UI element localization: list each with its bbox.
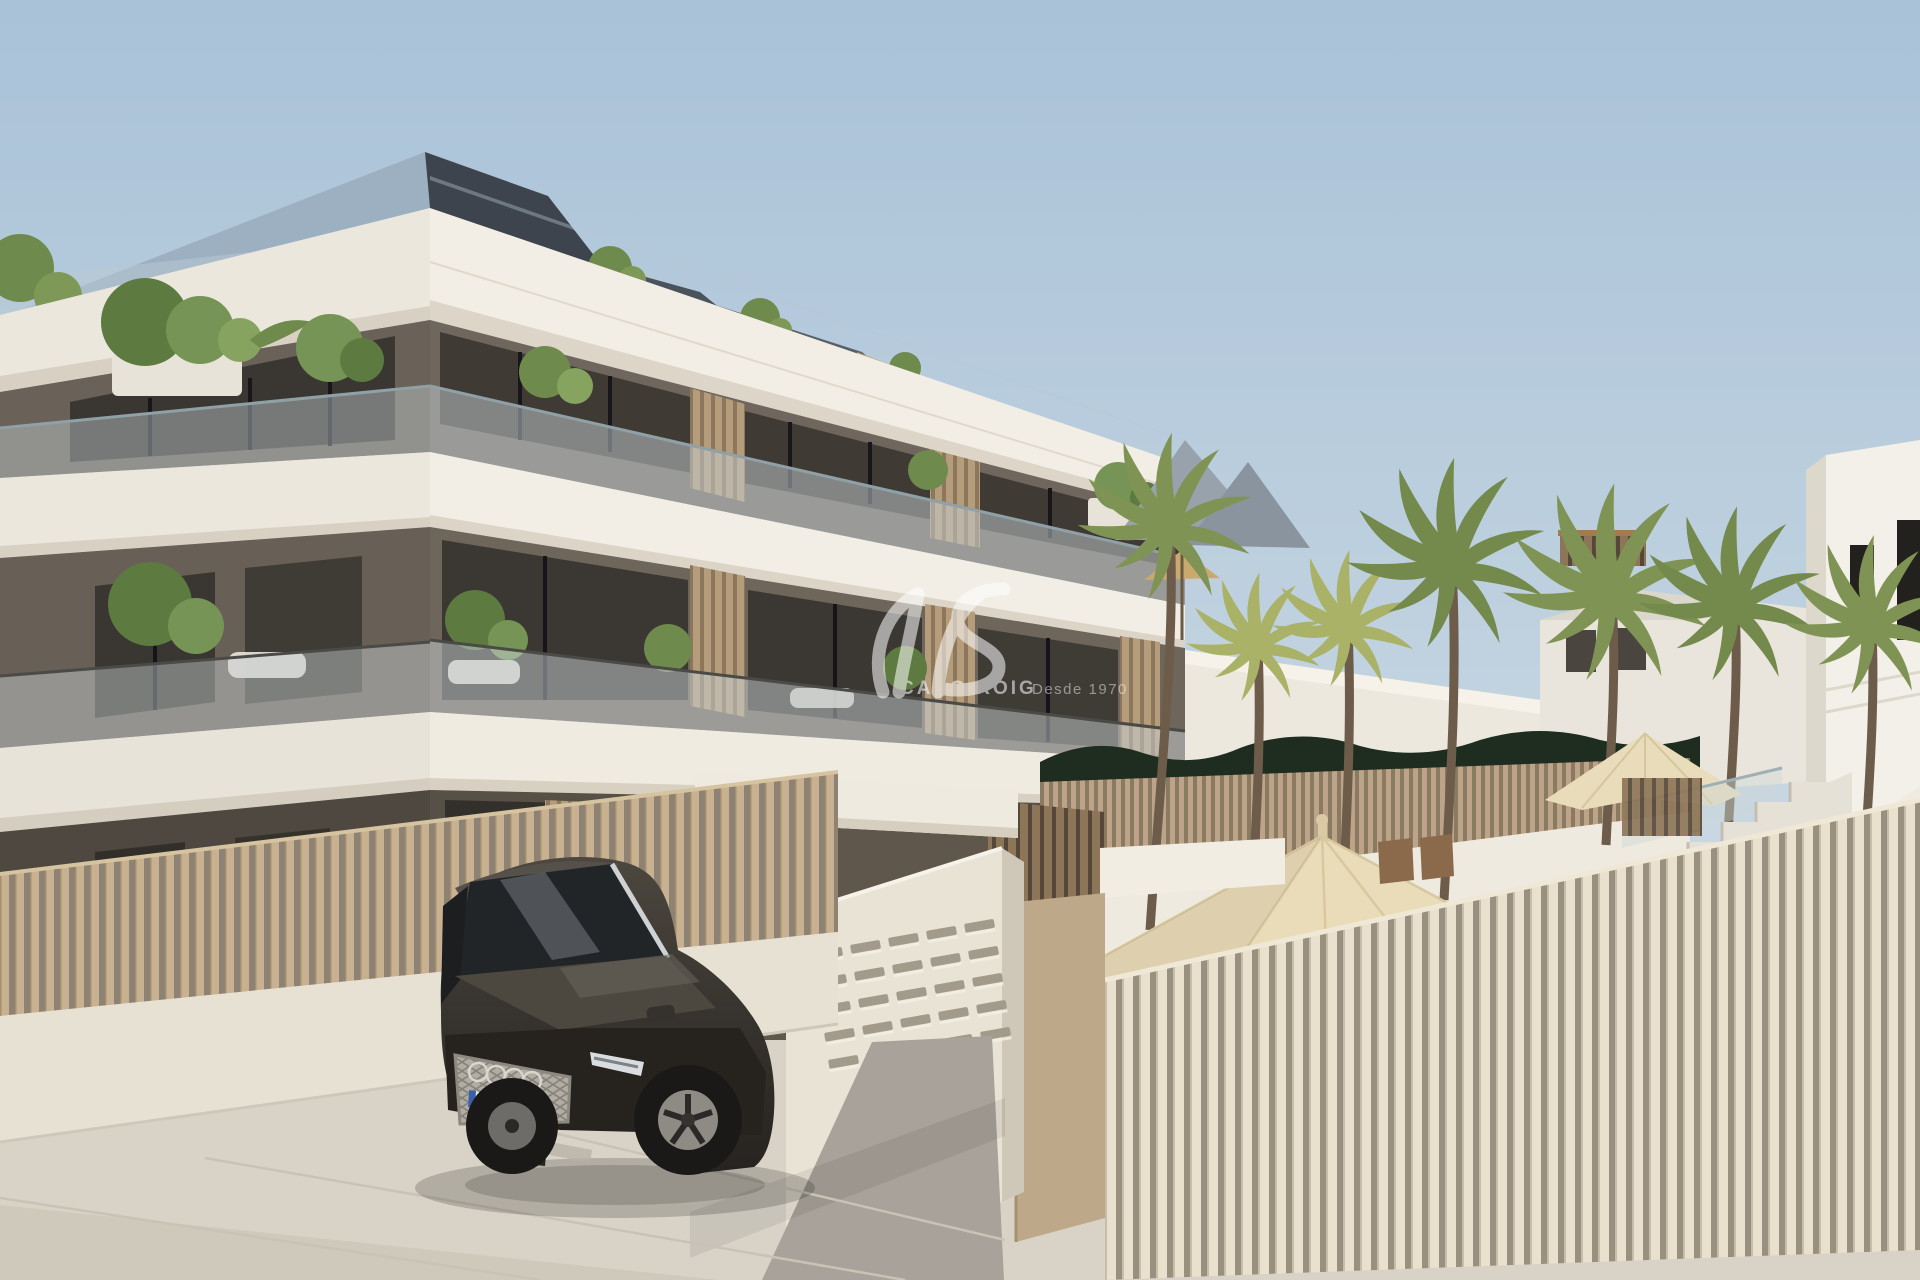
- watermark-tagline: Desde 1970: [1032, 681, 1128, 698]
- gate-pillar-tan: [1016, 893, 1105, 1242]
- watermark-brand: CABO ROIG: [900, 678, 1037, 699]
- architectural-render: CABO ROIG Desde 1970: [0, 0, 1920, 1280]
- car-front-wheel: [634, 1065, 742, 1175]
- car-rear-wheel: [466, 1078, 558, 1174]
- wood-balcony-rail: [1622, 778, 1702, 836]
